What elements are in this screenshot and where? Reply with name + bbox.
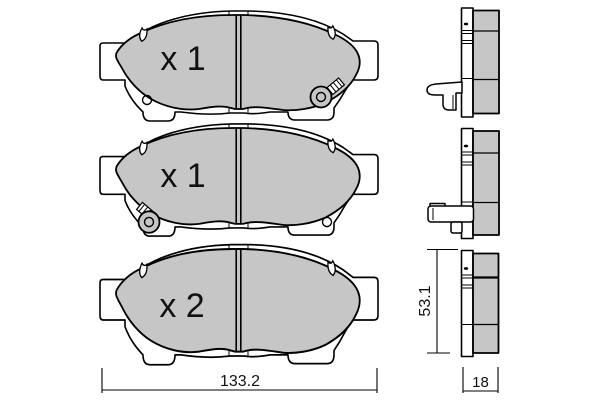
pad-front-view-3 (100, 245, 378, 365)
friction-material-edge (473, 131, 499, 235)
wear-indicator-boss (139, 211, 160, 232)
friction-material-edge (473, 254, 499, 354)
technical-drawing-canvas: x 1 x 1 x 2 (0, 0, 600, 400)
wear-indicator-boss (311, 87, 332, 108)
dim-width-value: 133.2 (220, 373, 260, 390)
pad-side-view-3 (462, 251, 499, 357)
pad-front-view-1 (100, 11, 378, 121)
quantity-label-2: x 1 (160, 157, 205, 195)
backing-plate-edge (462, 251, 474, 357)
wear-indicator-arm (428, 206, 474, 222)
arm-foot (451, 222, 462, 233)
plate-hole-mark (464, 267, 468, 270)
dim-thickness-value: 18 (472, 374, 489, 391)
quantity-label-3: x 2 (159, 287, 204, 325)
dim-height: 53.1 (417, 250, 458, 354)
dim-height-value: 53.1 (417, 285, 434, 316)
pad-side-view-1 (427, 8, 499, 117)
wear-indicator-arm (427, 82, 462, 110)
plate-hole-mark (464, 145, 468, 148)
quantity-label-1: x 1 (160, 40, 205, 78)
plate-hole-mark (464, 23, 468, 26)
friction-material-edge (473, 11, 499, 114)
pad-front-view-2 (100, 124, 378, 236)
brake-pad-set-drawing: x 1 x 1 x 2 (0, 0, 600, 400)
dim-thickness: 18 (463, 367, 498, 393)
dim-width: 133.2 (102, 368, 377, 393)
pad-side-view-2 (428, 129, 499, 239)
